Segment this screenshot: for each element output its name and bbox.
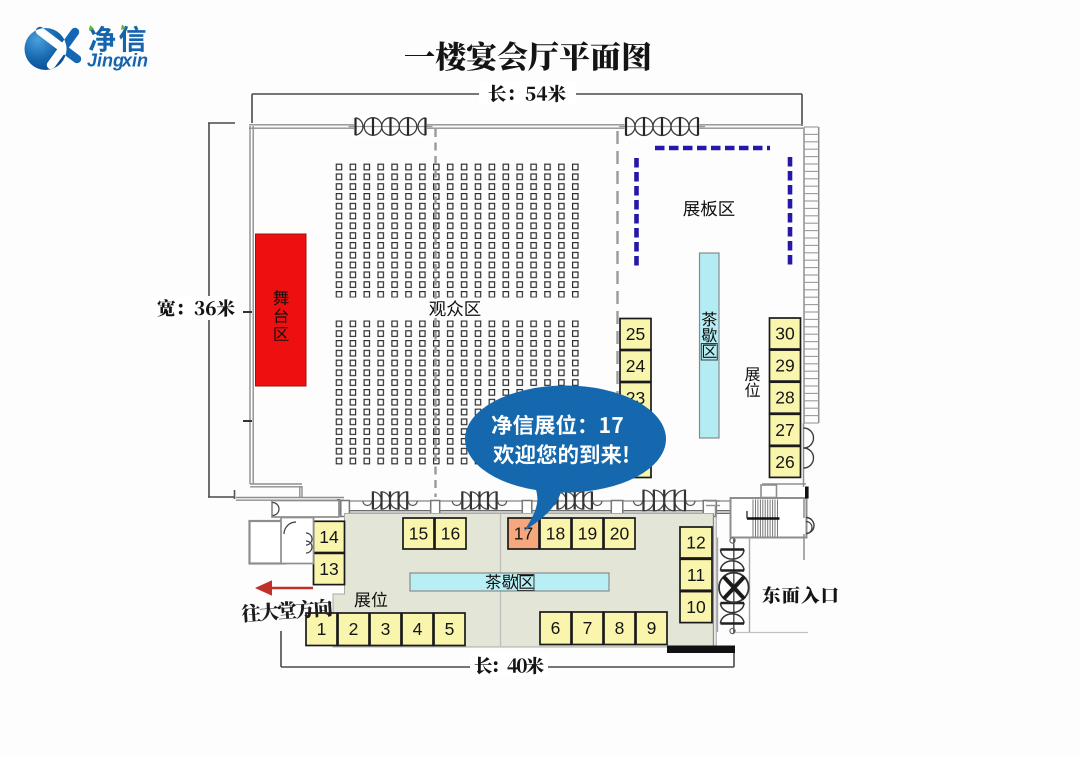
svg-text:xin: xin (121, 51, 148, 71)
svg-text:7: 7 (583, 618, 593, 638)
svg-text:14: 14 (319, 527, 339, 547)
svg-text:19: 19 (578, 524, 597, 544)
svg-text:15: 15 (409, 524, 428, 544)
svg-text:4: 4 (413, 619, 423, 639)
svg-text:3: 3 (381, 619, 391, 639)
svg-text:11: 11 (687, 565, 705, 585)
svg-text:16: 16 (441, 524, 460, 544)
svg-text:9: 9 (647, 618, 657, 638)
svg-text:8: 8 (615, 618, 625, 638)
svg-text:13: 13 (319, 559, 338, 579)
svg-text:27: 27 (775, 420, 794, 440)
svg-text:20: 20 (610, 524, 630, 544)
svg-text:1: 1 (317, 619, 327, 639)
svg-text:26: 26 (775, 452, 794, 472)
svg-text:6: 6 (551, 618, 561, 638)
svg-text:24: 24 (626, 356, 646, 376)
svg-text:2: 2 (349, 619, 359, 639)
svg-text:12: 12 (686, 533, 705, 553)
svg-text:28: 28 (775, 388, 794, 408)
svg-text:10: 10 (686, 597, 706, 617)
svg-text:18: 18 (546, 524, 565, 544)
svg-text:30: 30 (775, 324, 795, 344)
svg-text:5: 5 (445, 619, 455, 639)
svg-text:Jing: Jing (87, 51, 124, 71)
svg-text:29: 29 (775, 356, 794, 376)
svg-text:25: 25 (626, 324, 645, 344)
